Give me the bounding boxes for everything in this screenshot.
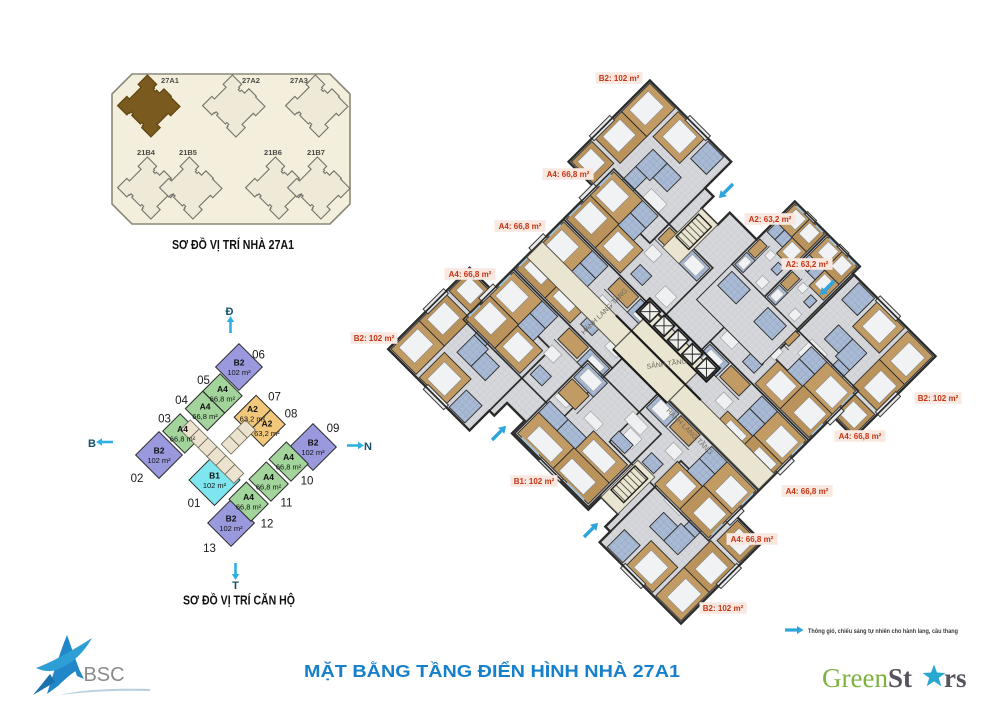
svg-text:MẶT BẰNG TẦNG ĐIỂN HÌNH NHÀ 27: MẶT BẰNG TẦNG ĐIỂN HÌNH NHÀ 27A1 — [304, 660, 680, 681]
svg-text:GreenSt: GreenSt — [822, 663, 912, 693]
svg-text:B1: B1 — [209, 471, 220, 481]
svg-text:27A2: 27A2 — [242, 76, 260, 85]
svg-text:66,8 m²: 66,8 m² — [192, 412, 218, 421]
svg-text:A4: A4 — [200, 401, 211, 411]
svg-text:A4: 66,8 m²: A4: 66,8 m² — [449, 270, 492, 279]
svg-text:A2: 63,2 m²: A2: 63,2 m² — [786, 260, 829, 269]
svg-text:102 m²: 102 m² — [147, 456, 171, 465]
svg-text:27A1: 27A1 — [161, 76, 179, 85]
svg-text:10: 10 — [301, 476, 314, 488]
svg-text:A4: A4 — [263, 472, 274, 482]
svg-text:66,8 m²: 66,8 m² — [256, 483, 282, 492]
svg-text:Đ: Đ — [226, 306, 234, 318]
svg-text:A2: A2 — [247, 404, 258, 414]
svg-text:B: B — [88, 438, 96, 450]
svg-text:66,8 m²: 66,8 m² — [276, 463, 302, 472]
svg-text:rs: rs — [944, 663, 967, 693]
svg-text:A4: 66,8 m²: A4: 66,8 m² — [499, 222, 542, 231]
svg-text:09: 09 — [327, 423, 340, 435]
svg-text:BSC: BSC — [83, 664, 124, 686]
svg-text:102 m²: 102 m² — [227, 368, 251, 377]
svg-text:01: 01 — [188, 498, 201, 510]
svg-text:A4: A4 — [177, 424, 188, 434]
svg-text:66,8 m²: 66,8 m² — [170, 434, 196, 443]
svg-text:03: 03 — [158, 414, 171, 426]
svg-text:21B5: 21B5 — [179, 148, 197, 157]
svg-text:27A3: 27A3 — [290, 76, 308, 85]
svg-text:B1: 102 m²: B1: 102 m² — [514, 477, 555, 486]
svg-text:B2: B2 — [226, 514, 237, 524]
svg-text:B2: 102 m²: B2: 102 m² — [599, 74, 640, 83]
svg-text:13: 13 — [203, 543, 216, 555]
svg-text:08: 08 — [285, 409, 298, 421]
svg-text:B2: B2 — [234, 358, 245, 368]
svg-text:06: 06 — [252, 350, 265, 362]
svg-text:A4: 66,8 m²: A4: 66,8 m² — [839, 432, 882, 441]
svg-text:102 m²: 102 m² — [301, 448, 325, 457]
svg-text:12: 12 — [261, 519, 274, 531]
svg-text:Thông gió, chiếu sáng tự nhiên: Thông gió, chiếu sáng tự nhiên cho hành … — [808, 626, 958, 635]
svg-text:05: 05 — [197, 375, 210, 387]
svg-text:B2: B2 — [154, 446, 165, 456]
svg-text:N: N — [364, 441, 372, 453]
svg-text:04: 04 — [175, 395, 188, 407]
svg-text:A4: A4 — [217, 384, 228, 394]
svg-text:21B7: 21B7 — [307, 148, 325, 157]
svg-text:63,2 m²: 63,2 m² — [254, 429, 280, 438]
svg-text:B2: B2 — [308, 438, 319, 448]
svg-text:B2: 102 m²: B2: 102 m² — [918, 394, 959, 403]
svg-text:A4: 66,8 m²: A4: 66,8 m² — [731, 535, 774, 544]
svg-text:A4: 66,8 m²: A4: 66,8 m² — [547, 170, 590, 179]
svg-text:A2: 63,2 m²: A2: 63,2 m² — [749, 215, 792, 224]
svg-text:66,8 m²: 66,8 m² — [210, 395, 236, 404]
svg-text:A4: A4 — [243, 492, 254, 502]
svg-text:66,8 m²: 66,8 m² — [236, 503, 262, 512]
svg-text:A2: A2 — [261, 419, 272, 429]
svg-text:07: 07 — [268, 392, 281, 404]
svg-text:SƠ ĐỒ VỊ TRÍ CĂN HỘ: SƠ ĐỒ VỊ TRÍ CĂN HỘ — [183, 593, 295, 608]
svg-text:A4: 66,8 m²: A4: 66,8 m² — [786, 487, 829, 496]
svg-text:102 m²: 102 m² — [219, 524, 243, 533]
svg-text:11: 11 — [281, 498, 293, 510]
svg-text:102 m²: 102 m² — [203, 481, 227, 490]
svg-text:02: 02 — [131, 473, 144, 485]
svg-text:SƠ ĐỒ VỊ TRÍ NHÀ 27A1: SƠ ĐỒ VỊ TRÍ NHÀ 27A1 — [172, 237, 294, 252]
svg-text:21B6: 21B6 — [264, 148, 282, 157]
svg-text:21B4: 21B4 — [137, 148, 156, 157]
svg-text:B2: 102 m²: B2: 102 m² — [354, 334, 395, 343]
svg-text:T: T — [232, 580, 239, 592]
svg-text:A4: A4 — [283, 452, 294, 462]
svg-text:B2: 102 m²: B2: 102 m² — [703, 604, 744, 613]
